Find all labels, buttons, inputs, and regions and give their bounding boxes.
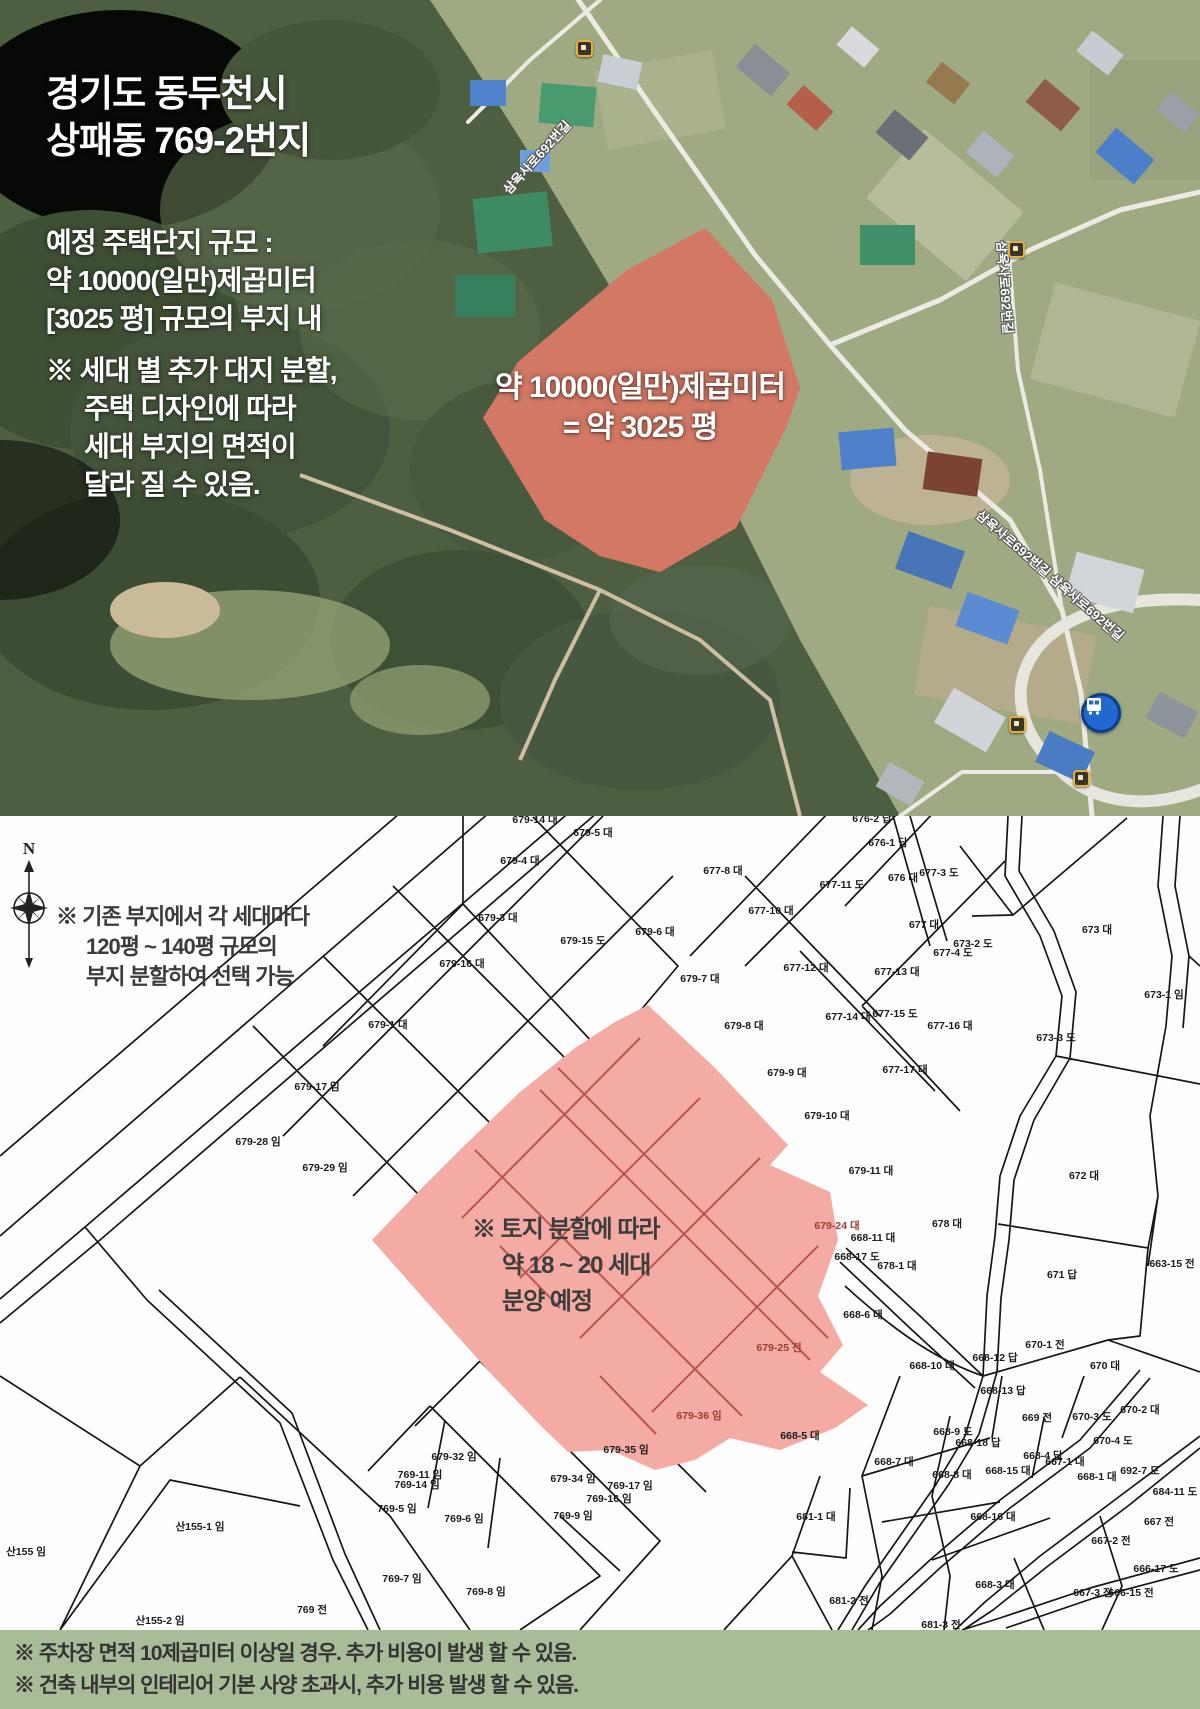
lot-label: 679-36 임 [676,1409,721,1422]
lot-label: 668-18 답 [955,1437,1001,1449]
division-note: ※ 기존 부지에서 각 세대마다120평 ~ 140평 규모의부지 분할하여 선… [56,902,309,992]
lot-label: 670 대 [1090,1359,1120,1372]
lot-label: 668-15 대 [985,1464,1030,1477]
lot-label: 679-11 대 [849,1164,894,1177]
lot-label: 769-8 임 [466,1585,505,1598]
lot-label: 667-1 대 [1045,1455,1084,1468]
lot-label: 668-12 답 [972,1352,1018,1364]
lot-label: 679-16 대 [439,957,484,970]
lot-label: 679-8 대 [724,1019,763,1032]
lot-label: 677-4 도 [933,947,973,959]
lot-label: 산155-2 임 [135,1614,184,1627]
lot-label: 679-15 도 [560,935,606,947]
lot-label: 681-1 대 [796,1510,835,1523]
lot-label: 679-1 대 [368,1018,407,1031]
lot-label: 669 전 [1022,1411,1052,1424]
lot-label: 668-10 대 [909,1359,954,1372]
land-marker-icon[interactable] [1073,770,1090,787]
lot-label: 679-24 대 [814,1219,859,1232]
site-area-label: 약 10000(일만)제곱미터= 약 3025 평 [430,368,850,448]
lot-label: 677-11 도 [820,879,865,891]
lot-label: 666-17 도 [1133,1563,1179,1575]
lot-label: 681-2 전 [829,1594,868,1607]
lot-label: 676-1 답 [868,837,908,849]
flyer-page: 경기도 동두천시상패동 769-2번지 예정 주택단지 규모 :약 10000(… [0,0,1200,1709]
lot-label: 676 대 [888,871,918,884]
land-marker-icon[interactable] [576,40,593,57]
lot-label: 679-14 대 [512,816,557,826]
lot-label: 679-7 대 [680,972,719,985]
lot-label: 679-29 임 [302,1161,347,1174]
lot-label: 668-11 대 [851,1231,896,1244]
units-note: ※ 토지 분할에 따라약 18 ~ 20 세대분양 예정 [472,1212,660,1320]
text-line: [3025 평] 규모의 부지 내 [46,300,321,338]
lot-label: 668-6 대 [843,1308,882,1321]
lot-label: 673-3 도 [1036,1032,1076,1044]
lot-label: 677-14 대 [825,1010,870,1023]
lot-label: 679-6 대 [635,925,674,938]
cadastral-map: 679-14 대679-5 대676-2 답676-1 답679-4 대677-… [0,816,1200,1630]
lot-label: 679-35 임 [603,1443,648,1456]
text-line: 상패동 769-2번지 [46,117,310,164]
text-line: 부지 분할하여 선택 가능 [56,962,309,992]
lot-label: 677-16 대 [927,1019,972,1032]
lot-label: 678 대 [932,1217,962,1230]
land-marker-icon[interactable] [1008,241,1025,258]
lot-label: 666-15 전 [1108,1586,1153,1599]
lot-label: 668-3 대 [975,1578,1014,1591]
lot-label: 677-15 도 [872,1008,918,1020]
lot-label: 679-34 임 [550,1472,595,1485]
lot-label: 679-10 대 [804,1109,849,1122]
lot-label: 678-1 대 [877,1259,916,1272]
lot-label: 677-12 대 [783,961,828,974]
lot-label: 679-4 대 [500,854,539,867]
lot-label: 668-17 도 [834,1251,880,1263]
lot-label: 769 전 [297,1603,327,1616]
text-line: 약 10000(일만)제곱미터 [430,368,850,408]
lot-label: 673-1 임 [1144,988,1183,1001]
lot-label: 672 대 [1069,1169,1099,1182]
lot-label: 668-7 대 [874,1455,913,1468]
lot-label: 676-2 답 [852,816,892,825]
lot-label: 668-8 대 [932,1468,971,1481]
lot-label: 679-32 임 [431,1450,476,1463]
text-line: 분양 예정 [472,1284,660,1320]
footer-banner: ※ 주차장 면적 10제곱미터 이상일 경우. 추가 비용이 발생 할 수 있음… [0,1630,1200,1709]
bus-glyph [1084,696,1104,716]
lot-label: 670-3 도 [1072,1411,1112,1423]
text-line: 약 18 ~ 20 세대 [472,1248,660,1284]
text-line: 예정 주택단지 규모 : [46,224,321,262]
lot-label: 769-9 임 [553,1509,592,1522]
lot-label: 679-5 대 [573,826,612,839]
lot-label: 769-7 임 [382,1572,421,1585]
lot-label: 679-25 전 [756,1341,801,1354]
lot-label: 667-3 전 [1073,1586,1112,1599]
site-size-text: 예정 주택단지 규모 :약 10000(일만)제곱미터[3025 평] 규모의 … [46,224,321,338]
text-line: 경기도 동두천시 [46,70,310,117]
lot-label: 670-4 도 [1093,1435,1133,1447]
footer-notes: ※ 주차장 면적 10제곱미터 이상일 경우. 추가 비용이 발생 할 수 있음… [0,1638,1200,1702]
lot-label: 668-5 대 [780,1429,819,1442]
text-line: ※ 건축 내부의 인테리어 기본 사양 초과시, 추가 비용 발생 할 수 있음… [14,1670,1200,1702]
lot-label: 671 답 [1047,1269,1077,1281]
lot-label: 679-3 대 [478,911,517,924]
site-note-text: ※ 세대 별 추가 대지 분할,주택 디자인에 따라세대 부지의 면적이달라 질… [46,352,337,504]
text-line: 주택 디자인에 따라 [46,390,337,428]
lot-label: 668-1 대 [1077,1470,1116,1483]
lot-label: 668-16 대 [970,1510,1015,1523]
text-line: 120평 ~ 140평 규모의 [56,932,309,962]
lot-label: 677-13 대 [874,965,919,978]
satellite-map: 경기도 동두천시상패동 769-2번지 예정 주택단지 규모 :약 10000(… [0,0,1200,816]
lot-label: 677-8 대 [703,864,742,877]
text-line: ※ 세대 별 추가 대지 분할, [46,352,337,390]
lot-label: 769-14 임 [394,1478,439,1491]
lot-label: 산155 임 [6,1545,46,1558]
svg-text:N: N [23,839,36,858]
lot-label: 677-17 대 [882,1063,927,1076]
lot-label: 681-3 전 [921,1618,960,1630]
lot-label: 684-11 도 [1153,1486,1198,1498]
text-line: ※ 주차장 면적 10제곱미터 이상일 경우. 추가 비용이 발생 할 수 있음… [14,1638,1200,1670]
lot-label: 679-9 대 [767,1066,806,1079]
text-line: 세대 부지의 면적이 [46,428,337,466]
lot-label: 769-16 임 [586,1492,631,1505]
text-line: = 약 3025 평 [430,408,850,448]
lot-label: 679-28 임 [235,1135,280,1148]
compass-icon: N [10,839,48,968]
land-marker-icon[interactable] [1009,716,1026,733]
lot-label: 673 대 [1082,923,1112,936]
lot-label: 산155-1 임 [175,1520,224,1533]
lot-label: 677 대 [909,918,939,931]
lot-label: 769-6 임 [444,1512,483,1525]
location-title: 경기도 동두천시상패동 769-2번지 [46,70,310,164]
lot-label: 668-13 답 [980,1385,1026,1397]
text-line: ※ 기존 부지에서 각 세대마다 [56,902,309,932]
lot-label: 670-1 전 [1025,1338,1064,1351]
lot-label: 663-15 전 [1149,1257,1194,1270]
lot-label: 667-2 전 [1091,1534,1130,1547]
lot-label: 670-2 대 [1120,1403,1159,1416]
text-line: 달라 질 수 있음. [46,466,337,504]
lot-label: 667 전 [1144,1515,1174,1528]
lot-label: 677-3 도 [919,867,959,879]
lot-label: 677-10 대 [748,904,793,917]
lot-label: 692-7 도 [1120,1465,1160,1477]
lot-label: 679-17 임 [294,1080,339,1093]
bus-stop-icon[interactable] [1081,693,1121,733]
lot-label: 769-5 임 [377,1502,416,1515]
lot-label: 769-17 임 [607,1479,652,1492]
text-line: 약 10000(일만)제곱미터 [46,262,321,300]
text-line: ※ 토지 분할에 따라 [472,1212,660,1248]
